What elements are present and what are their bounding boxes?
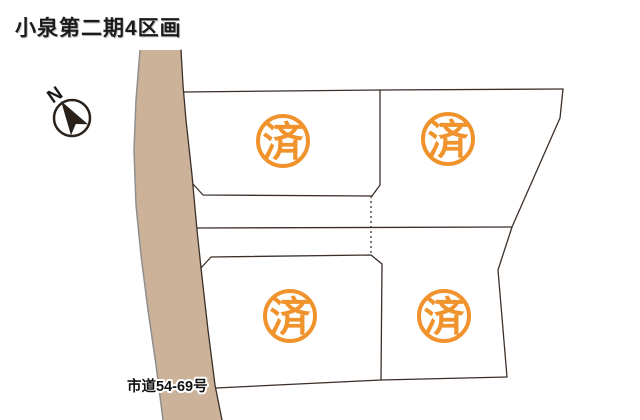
road-surface bbox=[134, 50, 222, 420]
lots-top-boundary bbox=[184, 89, 563, 92]
site-plan-map: 済 済 済 済 N 市道54-69号 bbox=[0, 0, 640, 420]
north-arrow: N bbox=[44, 83, 90, 136]
lots-bottom-boundary bbox=[216, 377, 507, 388]
sold-stamp-top-left: 済 bbox=[258, 116, 308, 166]
lots-right-boundary bbox=[498, 89, 563, 377]
sold-stamp-character: 済 bbox=[424, 294, 466, 340]
sold-stamp-character: 済 bbox=[270, 294, 312, 340]
top-lots-divider bbox=[372, 90, 380, 196]
top-left-lot-bottom-edge bbox=[193, 184, 372, 196]
sold-stamp-bottom-left: 済 bbox=[265, 291, 315, 341]
sold-stamp-bottom-right: 済 bbox=[419, 291, 469, 341]
middle-divider-line bbox=[197, 227, 512, 228]
sold-stamp-top-right: 済 bbox=[423, 114, 473, 164]
lot-map-page: 小泉第二期4区画 済 済 bbox=[0, 0, 640, 420]
sold-stamp-character: 済 bbox=[428, 117, 470, 163]
bottom-lots-divider bbox=[381, 264, 382, 380]
bottom-left-lot-top-edge bbox=[201, 255, 382, 268]
road-name-label: 市道54-69号 bbox=[127, 377, 208, 395]
sold-stamp-character: 済 bbox=[263, 119, 305, 165]
